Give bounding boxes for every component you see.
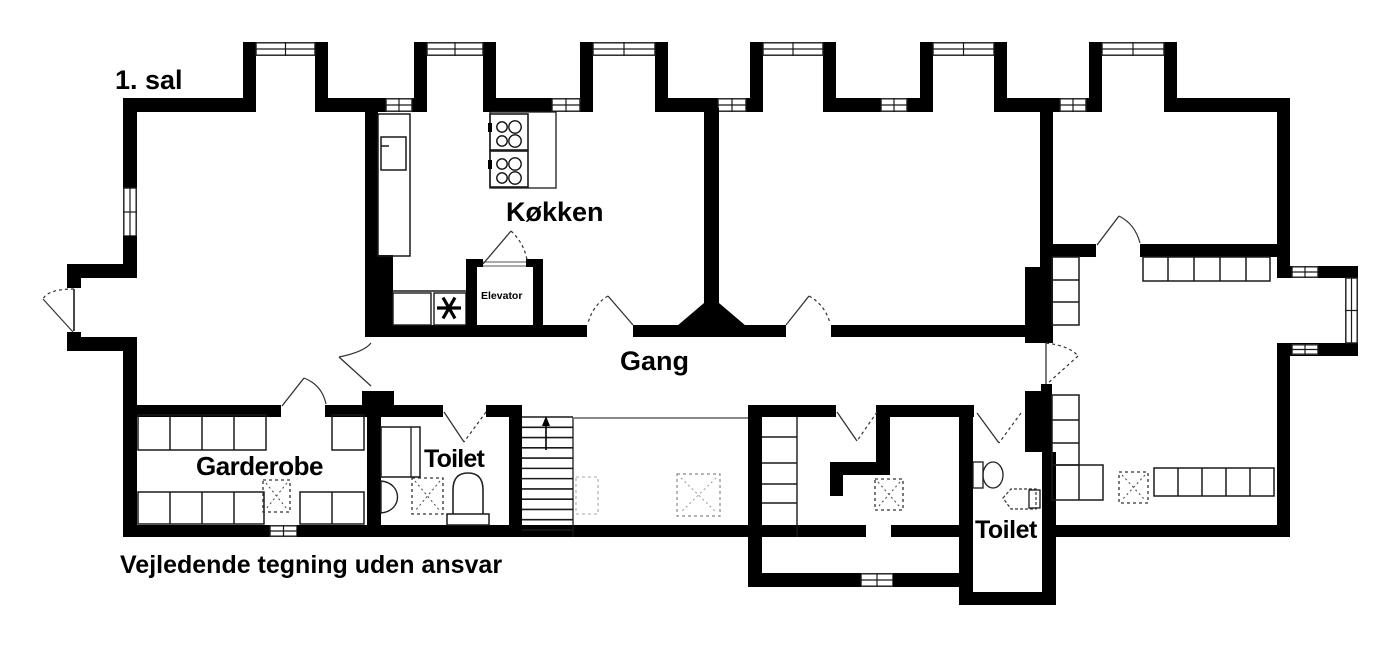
- svg-text:Vejledende tegning uden ansvar: Vejledende tegning uden ansvar: [120, 551, 502, 579]
- svg-text:Toilet: Toilet: [975, 516, 1038, 544]
- svg-text:Gang: Gang: [620, 346, 689, 376]
- svg-text:1. sal: 1. sal: [115, 65, 183, 95]
- svg-text:Toilet: Toilet: [424, 445, 485, 473]
- svg-text:Garderobe: Garderobe: [196, 451, 323, 481]
- svg-text:Køkken: Køkken: [506, 197, 604, 227]
- svg-text:Elevator: Elevator: [481, 290, 522, 302]
